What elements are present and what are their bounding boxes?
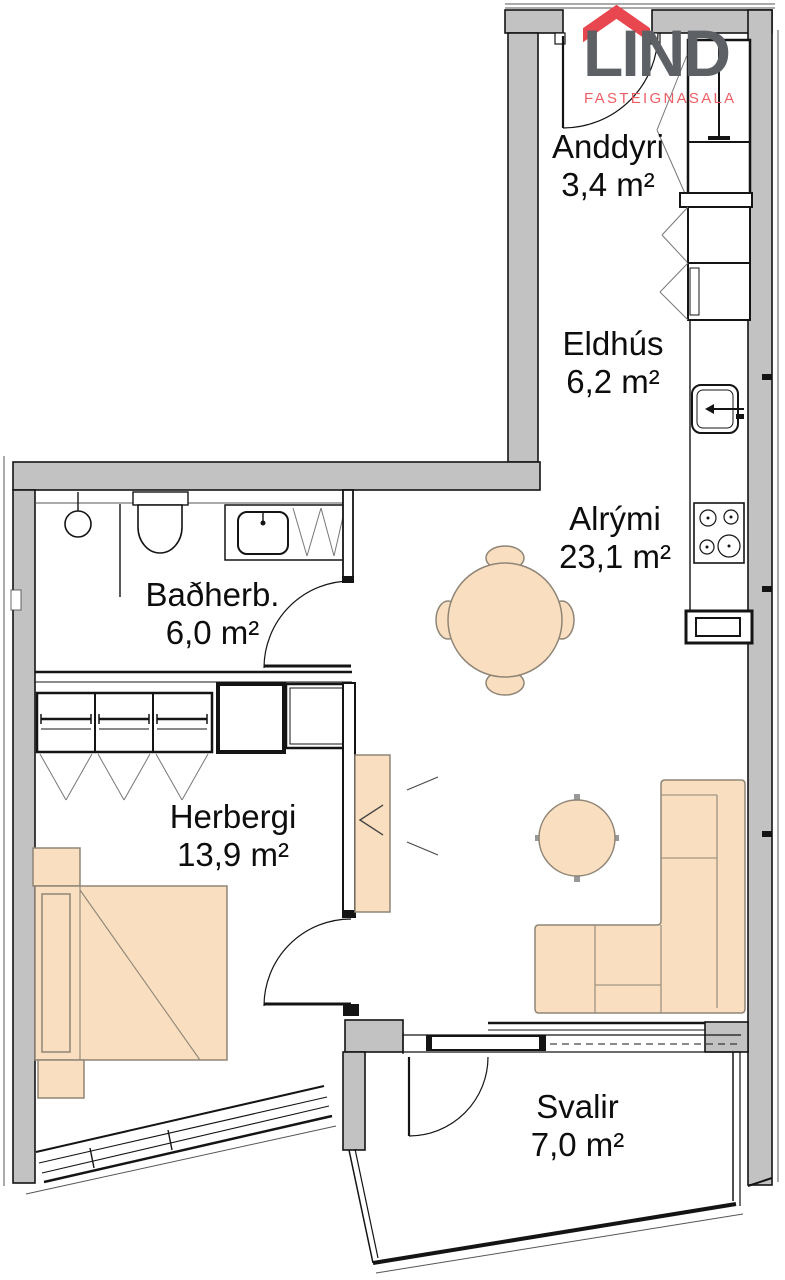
room-area: 3,4 m² — [538, 166, 678, 204]
tv-unit-icon — [355, 755, 438, 912]
lind-logo: LIND FASTEIGNASALA — [583, 4, 753, 106]
room-area: 23,1 m² — [535, 538, 695, 576]
nightstand-icon — [38, 1060, 84, 1098]
room-area: 13,9 m² — [148, 836, 318, 874]
bed-icon — [33, 848, 227, 1098]
room-name: Alrými — [535, 500, 695, 538]
shower-icon — [65, 492, 120, 597]
logo-subtitle: FASTEIGNASALA — [584, 90, 736, 107]
balcony-door — [409, 1057, 488, 1136]
room-area: 6,2 m² — [543, 363, 683, 401]
room-name: Baðherb. — [130, 576, 295, 614]
nightstand-icon — [33, 848, 80, 886]
radiator-icon — [686, 611, 752, 643]
room-label-anddyri: Anddyri 3,4 m² — [538, 128, 678, 204]
bedroom-window — [26, 1086, 336, 1194]
room-area: 6,0 m² — [130, 614, 295, 652]
coffee-table-icon — [535, 794, 619, 882]
room-label-svalir: Svalir 7,0 m² — [495, 1088, 660, 1164]
room-label-herbergi: Herbergi 13,9 m² — [148, 798, 318, 874]
pillow-icon — [42, 894, 70, 1052]
tv-wall — [342, 683, 438, 918]
bedroom-door — [264, 919, 351, 1006]
room-label-alrymi: Alrými 23,1 m² — [535, 500, 695, 576]
storage-closet-icon — [218, 684, 348, 752]
wardrobe-icon — [37, 693, 212, 800]
toilet-icon — [133, 492, 188, 553]
balcony-window — [403, 1033, 741, 1054]
bathroom-sink-icon — [225, 505, 345, 560]
room-label-badherb: Baðherb. 6,0 m² — [130, 576, 295, 652]
room-name: Anddyri — [538, 128, 678, 166]
logo-name: LIND — [583, 20, 729, 86]
room-name: Herbergi — [148, 798, 318, 836]
room-area: 7,0 m² — [495, 1126, 660, 1164]
stove-icon — [694, 503, 744, 563]
room-name: Svalir — [495, 1088, 660, 1126]
room-name: Eldhús — [543, 325, 683, 363]
floor-plan: Anddyri 3,4 m² Eldhús 6,2 m² Alrými 23,1… — [0, 0, 785, 1280]
kitchen-sink-icon — [692, 385, 744, 433]
room-label-eldhus: Eldhús 6,2 m² — [543, 325, 683, 401]
